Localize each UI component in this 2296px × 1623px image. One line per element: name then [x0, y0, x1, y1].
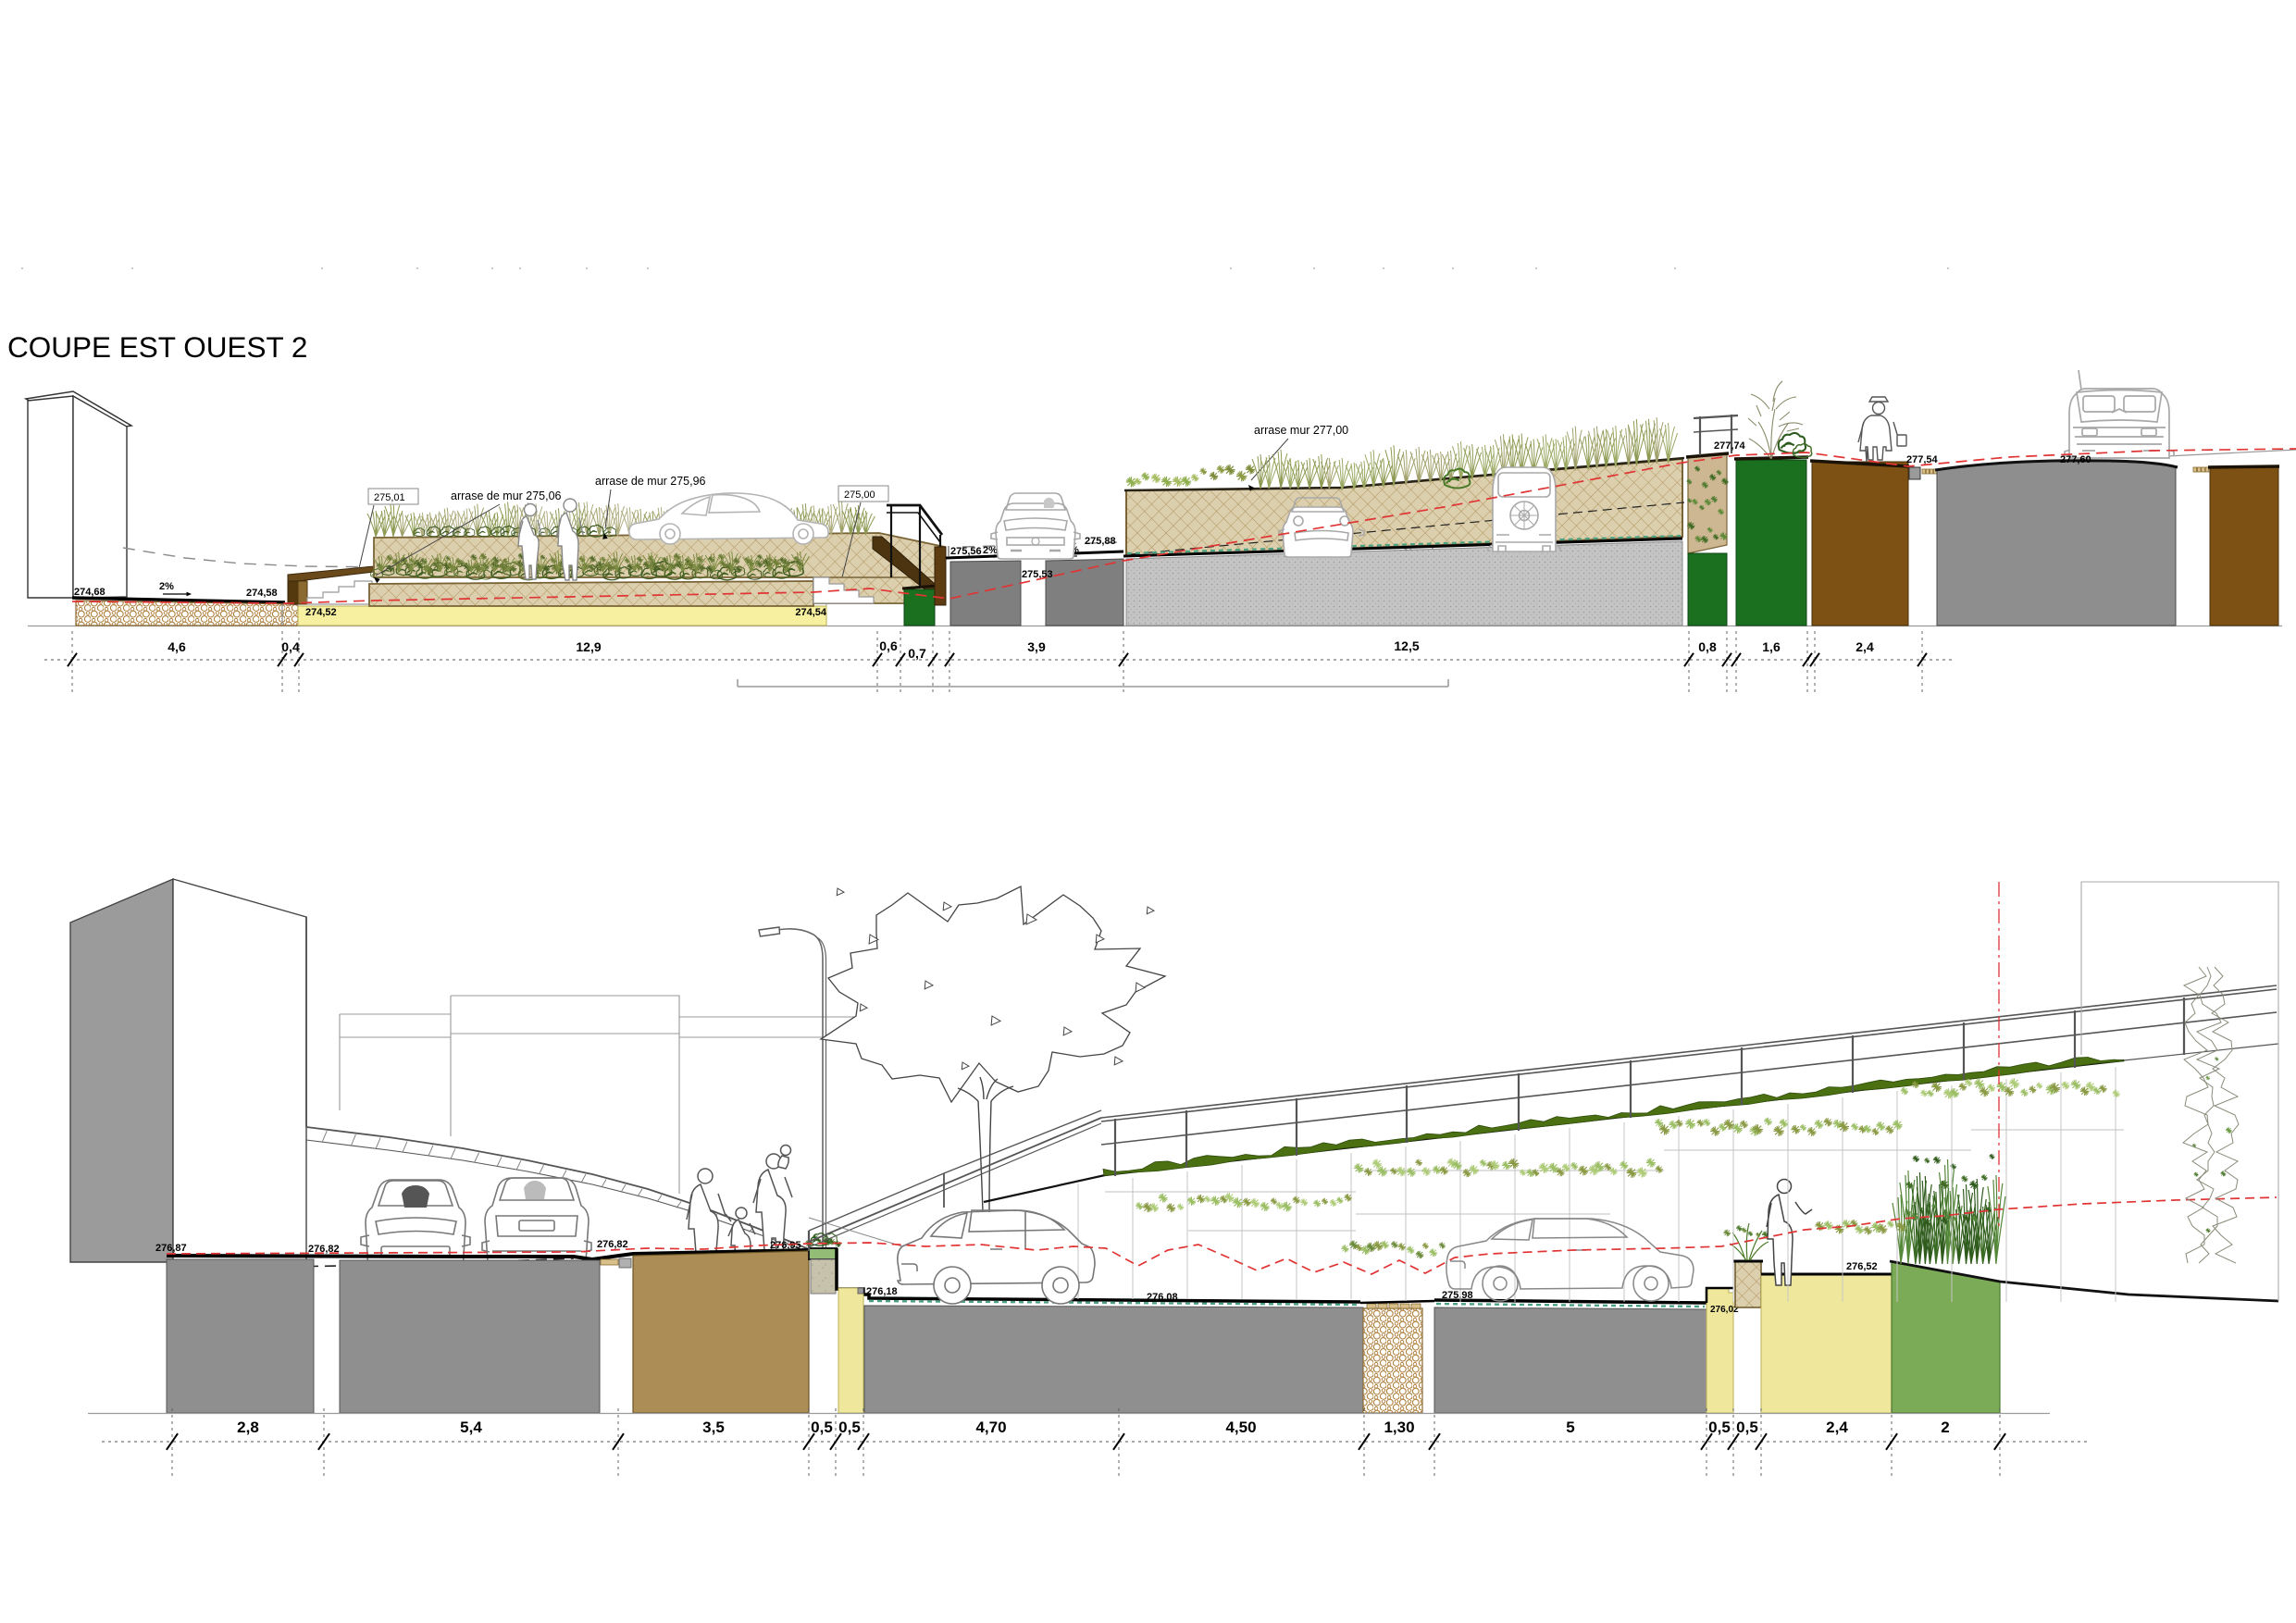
svg-text:5: 5: [1566, 1419, 1574, 1436]
svg-text:2%: 2%: [159, 581, 174, 592]
svg-text:0,5: 0,5: [811, 1419, 833, 1436]
svg-text:0,6: 0,6: [879, 638, 898, 653]
svg-text:12,9: 12,9: [576, 639, 601, 654]
svg-text:0,8: 0,8: [1698, 639, 1717, 654]
svg-text:2%: 2%: [983, 545, 998, 556]
svg-text:275,00: 275,00: [844, 489, 875, 501]
svg-text:COUPE EST OUEST 2: COUPE EST OUEST 2: [7, 330, 307, 364]
svg-text:276,08: 276,08: [1147, 1292, 1178, 1303]
svg-text:276,18: 276,18: [866, 1286, 898, 1297]
svg-text:275,01: 275,01: [374, 492, 405, 503]
svg-text:277,60: 277,60: [2060, 454, 2091, 465]
svg-text:277,54: 277,54: [1906, 454, 1939, 465]
svg-text:arrase de mur 275,96: arrase de mur 275,96: [595, 475, 706, 488]
svg-text:2: 2: [1941, 1419, 1949, 1436]
svg-text:arrase de mur 275,06: arrase de mur 275,06: [451, 489, 562, 502]
svg-text:3,5: 3,5: [702, 1419, 725, 1436]
svg-text:3,9: 3,9: [1027, 639, 1046, 654]
svg-text:1,30: 1,30: [1384, 1419, 1414, 1436]
svg-text:274,68: 274,68: [74, 587, 105, 598]
svg-text:275,98: 275,98: [1442, 1290, 1473, 1301]
svg-text:0,5: 0,5: [1736, 1419, 1758, 1436]
svg-text:275,56: 275,56: [950, 546, 982, 557]
svg-text:277,74: 277,74: [1714, 440, 1746, 452]
svg-text:0,7: 0,7: [908, 646, 926, 661]
svg-text:4,50: 4,50: [1225, 1419, 1256, 1436]
svg-text:276,82: 276,82: [597, 1239, 628, 1250]
svg-text:4,70: 4,70: [975, 1419, 1006, 1436]
svg-text:2,4: 2,4: [1826, 1419, 1848, 1436]
svg-text:274,58: 274,58: [246, 588, 278, 599]
svg-text:1,6: 1,6: [1762, 639, 1781, 654]
svg-text:0,4: 0,4: [281, 639, 300, 654]
svg-text:275,88: 275,88: [1085, 536, 1116, 547]
svg-text:5,4: 5,4: [460, 1419, 482, 1436]
svg-text:276,87: 276,87: [155, 1243, 187, 1254]
svg-text:arrase mur 277,00: arrase mur 277,00: [1254, 424, 1348, 437]
svg-text:12,5: 12,5: [1394, 638, 1419, 653]
svg-text:0,5: 0,5: [838, 1419, 861, 1436]
svg-text:274,54: 274,54: [795, 607, 827, 618]
svg-text:276,52: 276,52: [1846, 1261, 1878, 1272]
svg-text:0,5: 0,5: [1708, 1419, 1731, 1436]
svg-text:4,6: 4,6: [168, 639, 186, 654]
svg-text:274,52: 274,52: [305, 607, 337, 618]
svg-text:275,53: 275,53: [1022, 569, 1053, 580]
svg-text:2,8: 2,8: [237, 1419, 259, 1436]
svg-text:2,4: 2,4: [1855, 639, 1874, 654]
